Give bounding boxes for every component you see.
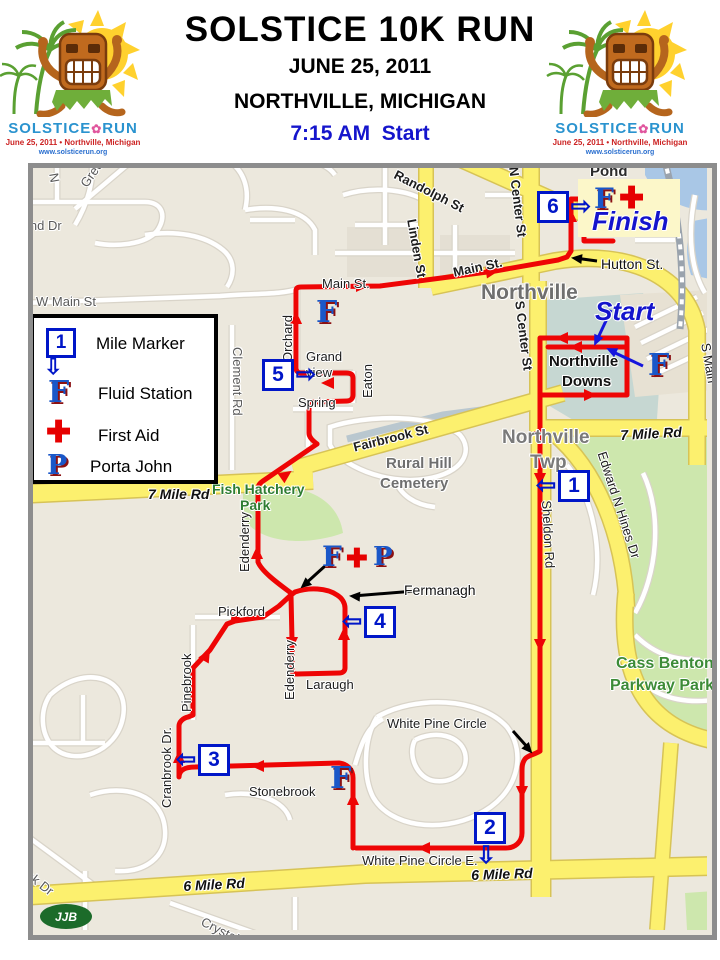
mile-marker-arrow-icon: ⇨ xyxy=(571,195,591,219)
map-label-cass-benton: Cass Benton xyxy=(616,656,714,672)
map-label-w-main-st: W Main St xyxy=(36,295,96,308)
route-arrowhead xyxy=(349,591,361,602)
flower-dot-icon: ✿ xyxy=(638,122,649,136)
map-label-northville: Northville xyxy=(502,428,590,447)
race-route xyxy=(291,589,345,674)
jjb-attribution-badge: JJB xyxy=(40,904,92,929)
map-label-7-mile-rd: 7 Mile Rd xyxy=(620,425,682,442)
race-route xyxy=(179,595,353,848)
porta-john-legend-icon: P xyxy=(47,452,67,479)
map-label-stonebrook: Stonebrook xyxy=(249,785,316,798)
map-label-cranbrook-dr-: Cranbrook Dr. xyxy=(160,727,173,808)
map-label-pond: Pond xyxy=(590,164,628,179)
logo-wordmark: SOLSTICE✿RUN xyxy=(0,120,148,137)
mile-marker-4: 4⇦ xyxy=(364,606,396,638)
fluid-station-marker: F xyxy=(648,351,669,381)
solstice-run-logo-left: SOLSTICE✿RUN June 25, 2011 • Northville,… xyxy=(0,2,148,160)
mile-marker-2: 2⇩ xyxy=(474,812,506,844)
map-label-northville: Northville xyxy=(481,282,578,303)
fluid-station-marker: F xyxy=(330,764,351,794)
map-label-bend-dr: Bend Dr xyxy=(28,219,62,232)
mile-marker-arrow-icon: ⇨ xyxy=(296,363,316,387)
map-label-clement-rd: Clement Rd xyxy=(231,347,244,416)
map-label-rural-hill: Rural Hill xyxy=(386,456,452,471)
mile-marker-6: 6⇨ xyxy=(537,191,569,223)
route-arrowhead xyxy=(251,546,263,559)
solstice-10k-map-page: { "header": { "title": "SOLSTICE 10K RUN… xyxy=(0,0,720,960)
mile-marker-1: 1⇦ xyxy=(558,470,590,502)
map-label-parkway-park: Parkway Park xyxy=(610,678,714,694)
route-arrowhead xyxy=(251,760,264,772)
mile-marker-3: 3⇦ xyxy=(198,744,230,776)
map-label-hutton-st-: Hutton St. xyxy=(601,257,663,271)
mile-marker-box: 3 xyxy=(198,744,230,776)
fluid-station-marker: F xyxy=(594,185,614,213)
logo-wordmark: SOLSTICE✿RUN xyxy=(545,120,695,137)
legend-label-fluid-station: Fluid Station xyxy=(98,384,193,404)
map-label-sheldon-rd: Sheldon Rd xyxy=(540,500,557,569)
logo-tagline: June 25, 2011 • Northville, Michigan xyxy=(545,138,695,147)
mile-marker-box: 4 xyxy=(364,606,396,638)
map-label-fermanagh: Fermanagh xyxy=(404,583,476,597)
logo-url: www.solsticerun.org xyxy=(0,149,148,156)
logo-tagline: June 25, 2011 • Northville, Michigan xyxy=(0,138,148,147)
fluid-station-legend-icon: F xyxy=(48,378,69,408)
map-region xyxy=(685,891,707,930)
map-label-cemetery: Cemetery xyxy=(380,476,448,491)
mile-marker-box: 6 xyxy=(537,191,569,223)
map-label-edenderry: Edenderry xyxy=(283,640,296,700)
legend-label-porta-john: Porta John xyxy=(90,457,172,477)
mile-marker-arrow-icon: ⇩ xyxy=(476,844,496,868)
mile-marker-arrow-icon: ⇦ xyxy=(342,610,362,634)
map-label-park: Park xyxy=(240,498,270,512)
map-label-downs: Downs xyxy=(562,374,611,389)
fluid-station-marker: F xyxy=(316,298,337,328)
route-arrowhead xyxy=(516,786,528,799)
tiki-logo-art xyxy=(545,2,695,117)
map-label-fish-hatchery: Fish Hatchery xyxy=(212,482,305,496)
first-aid-marker: ✚ xyxy=(346,545,368,571)
map-label-6-mile-rd: 6 Mile Rd xyxy=(183,876,245,893)
fluid-station-marker: F xyxy=(322,543,342,571)
mile-marker-box: 5 xyxy=(262,359,294,391)
mile-marker-arrow-icon: ⇦ xyxy=(536,474,556,498)
map-label-pickford: Pickford xyxy=(218,605,265,618)
map-legend: 1 ⇩ Mile Marker F Fluid Station ✚ First … xyxy=(30,314,218,484)
course-map: 1 ⇩ Mile Marker F Fluid Station ✚ First … xyxy=(28,163,717,940)
map-label-orchard: Orchard xyxy=(281,315,294,362)
first-aid-marker: ✚ xyxy=(619,184,644,214)
map-label-white-pine-circle: White Pine Circle xyxy=(387,717,487,730)
map-label-pinebrook: Pinebrook xyxy=(180,653,193,712)
legend-label-first-aid: First Aid xyxy=(98,426,159,446)
porta-john-marker: P xyxy=(373,544,393,570)
map-label-laraugh: Laraugh xyxy=(306,678,354,691)
map-label-eaton: Eaton xyxy=(361,364,374,398)
solstice-run-logo-right: SOLSTICE✿RUN June 25, 2011 • Northville,… xyxy=(545,2,695,160)
flower-dot-icon: ✿ xyxy=(91,122,102,136)
map-label-white-pine-circle-e-: White Pine Circle E. xyxy=(362,854,478,867)
map-label-main-st-: Main St. xyxy=(322,277,370,290)
legend-label-mile-marker: Mile Marker xyxy=(96,334,185,354)
map-label-7-mile-rd: 7 Mile Rd xyxy=(148,487,209,501)
map-label-start: Start xyxy=(595,298,654,324)
mile-marker-box: 2 xyxy=(474,812,506,844)
map-label-spring: Spring xyxy=(298,396,336,409)
map-label-edenderry: Edenderry xyxy=(238,512,251,572)
tiki-logo-art xyxy=(0,2,148,117)
mile-marker-5: 5⇨ xyxy=(262,359,294,391)
logo-url: www.solsticerun.org xyxy=(545,149,695,156)
mile-marker-arrow-icon: ⇦ xyxy=(176,748,196,772)
first-aid-legend-icon: ✚ xyxy=(46,418,71,448)
map-label-northville: Northville xyxy=(549,354,618,369)
mile-marker-box: 1 xyxy=(558,470,590,502)
race-route xyxy=(356,751,540,848)
